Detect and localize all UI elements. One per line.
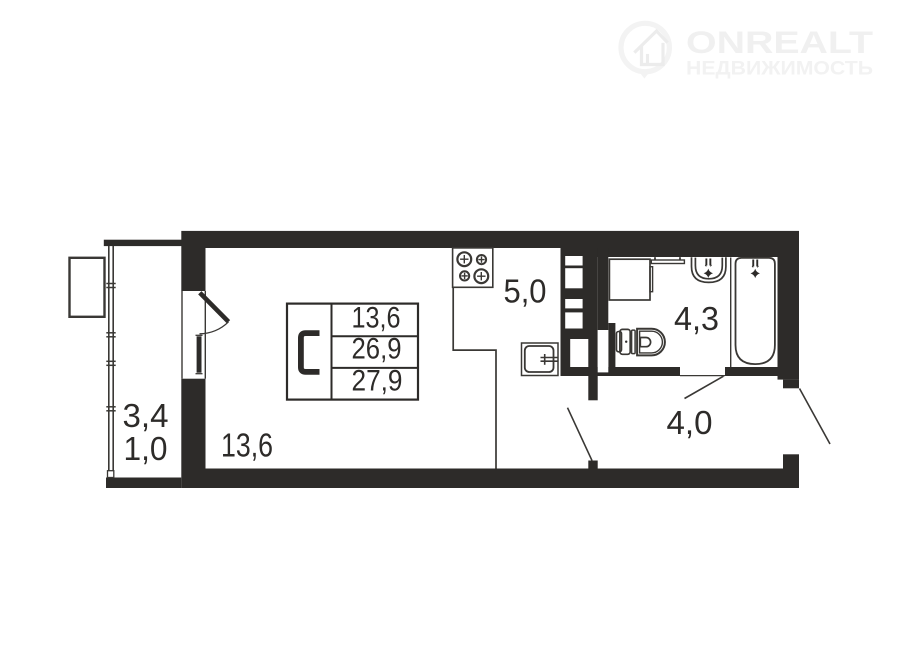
svg-text:4,3: 4,3 bbox=[674, 301, 719, 338]
svg-text:3,4: 3,4 bbox=[123, 398, 169, 435]
svg-text:НЕДВИЖИМОСТЬ: НЕДВИЖИМОСТЬ bbox=[686, 59, 873, 80]
svg-text:26,9: 26,9 bbox=[352, 333, 402, 366]
svg-text:13,6: 13,6 bbox=[221, 428, 273, 465]
svg-text:4,0: 4,0 bbox=[667, 405, 713, 442]
svg-text:5,0: 5,0 bbox=[504, 274, 547, 311]
svg-text:13,6: 13,6 bbox=[352, 302, 401, 335]
svg-text:ONREALT: ONREALT bbox=[686, 24, 873, 60]
svg-text:1,0: 1,0 bbox=[124, 431, 168, 468]
svg-text:27,9: 27,9 bbox=[352, 364, 403, 397]
